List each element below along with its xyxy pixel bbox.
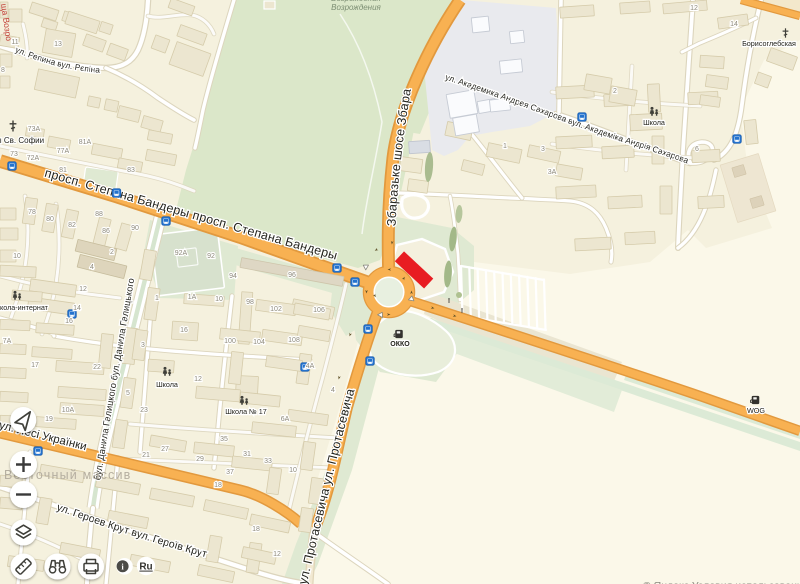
svg-text:10: 10 bbox=[215, 296, 223, 303]
svg-text:100: 100 bbox=[224, 338, 236, 345]
svg-text:4: 4 bbox=[331, 387, 335, 394]
svg-text:106: 106 bbox=[313, 307, 325, 314]
svg-text:18: 18 bbox=[214, 482, 222, 489]
svg-text:31: 31 bbox=[243, 451, 251, 458]
svg-text:ы Св. Софии: ы Св. Софии bbox=[0, 136, 44, 145]
svg-text:80: 80 bbox=[46, 216, 54, 223]
svg-text:Возрождения: Возрождения bbox=[331, 0, 381, 3]
svg-text:2: 2 bbox=[110, 249, 114, 256]
svg-text:WOG: WOG bbox=[747, 406, 765, 415]
svg-text:16: 16 bbox=[180, 327, 188, 334]
svg-text:18: 18 bbox=[252, 526, 260, 533]
svg-text:83: 83 bbox=[127, 167, 135, 174]
svg-text:2: 2 bbox=[613, 88, 617, 95]
svg-text:29: 29 bbox=[196, 456, 204, 463]
svg-text:Борисоглебская: Борисоглебская bbox=[742, 39, 796, 48]
svg-text:ОККО: ОККО bbox=[390, 341, 410, 348]
svg-text:4А: 4А bbox=[306, 363, 315, 370]
svg-text:37: 37 bbox=[226, 469, 234, 476]
svg-text:17: 17 bbox=[31, 362, 39, 369]
svg-text:12: 12 bbox=[690, 5, 698, 12]
svg-text:92А: 92А bbox=[175, 250, 188, 257]
svg-text:92: 92 bbox=[207, 253, 215, 260]
svg-text:12: 12 bbox=[194, 376, 202, 383]
svg-text:4: 4 bbox=[90, 264, 94, 271]
svg-text:1: 1 bbox=[503, 143, 507, 150]
svg-text:11: 11 bbox=[11, 39, 18, 46]
svg-text:3: 3 bbox=[541, 146, 545, 153]
svg-text:1: 1 bbox=[155, 295, 159, 302]
svg-text:10: 10 bbox=[289, 467, 297, 474]
svg-text:3: 3 bbox=[141, 342, 145, 349]
svg-text:23: 23 bbox=[140, 407, 148, 414]
svg-text:Ru: Ru bbox=[139, 562, 152, 573]
svg-text:33: 33 bbox=[264, 458, 272, 465]
svg-text:86: 86 bbox=[102, 228, 110, 235]
svg-text:104: 104 bbox=[253, 339, 265, 346]
svg-text:77А: 77А bbox=[57, 148, 70, 155]
svg-text:72А: 72А bbox=[27, 155, 40, 162]
svg-text:5: 5 bbox=[126, 390, 130, 397]
svg-text:73А: 73А bbox=[28, 126, 41, 133]
svg-text:94: 94 bbox=[229, 273, 237, 280]
svg-text:35: 35 bbox=[220, 436, 228, 443]
svg-text:19: 19 bbox=[45, 416, 53, 423]
svg-text:7А: 7А bbox=[3, 338, 12, 345]
svg-text:96: 96 bbox=[288, 272, 296, 279]
svg-text:98: 98 bbox=[246, 299, 254, 306]
svg-text:8: 8 bbox=[1, 67, 5, 74]
svg-text:81А: 81А bbox=[79, 139, 92, 146]
svg-text:6А: 6А bbox=[281, 416, 290, 423]
svg-text:Возрождения: Возрождения bbox=[331, 3, 381, 12]
svg-text:88: 88 bbox=[95, 211, 103, 218]
svg-text:10А: 10А bbox=[62, 407, 75, 414]
svg-text:108: 108 bbox=[288, 337, 300, 344]
svg-text:12: 12 bbox=[273, 551, 281, 558]
svg-text:1А: 1А bbox=[188, 294, 197, 301]
svg-text:12: 12 bbox=[79, 286, 87, 293]
svg-text:14: 14 bbox=[730, 21, 738, 28]
svg-text:78: 78 bbox=[28, 209, 36, 216]
svg-text:90: 90 bbox=[131, 225, 139, 232]
svg-text:кола-интернат: кола-интернат bbox=[0, 303, 49, 312]
svg-text:Школа: Школа bbox=[643, 118, 665, 127]
svg-text:16: 16 bbox=[65, 318, 73, 325]
svg-text:6: 6 bbox=[695, 146, 699, 153]
svg-text:81: 81 bbox=[59, 167, 67, 174]
svg-text:14: 14 bbox=[73, 305, 81, 312]
svg-text:© Яндекс Условия использования: © Яндекс Условия использования bbox=[643, 580, 800, 584]
svg-text:22: 22 bbox=[93, 364, 101, 371]
svg-text:102: 102 bbox=[270, 306, 282, 313]
svg-text:10: 10 bbox=[13, 253, 21, 260]
svg-text:73: 73 bbox=[10, 151, 18, 158]
svg-text:21: 21 bbox=[142, 452, 150, 459]
svg-text:Школа № 17: Школа № 17 bbox=[225, 407, 267, 416]
svg-text:Школа: Школа bbox=[156, 380, 178, 389]
svg-text:27: 27 bbox=[161, 446, 169, 453]
svg-text:3А: 3А bbox=[548, 169, 557, 176]
svg-text:82: 82 bbox=[68, 222, 76, 229]
svg-text:13: 13 bbox=[54, 41, 62, 48]
